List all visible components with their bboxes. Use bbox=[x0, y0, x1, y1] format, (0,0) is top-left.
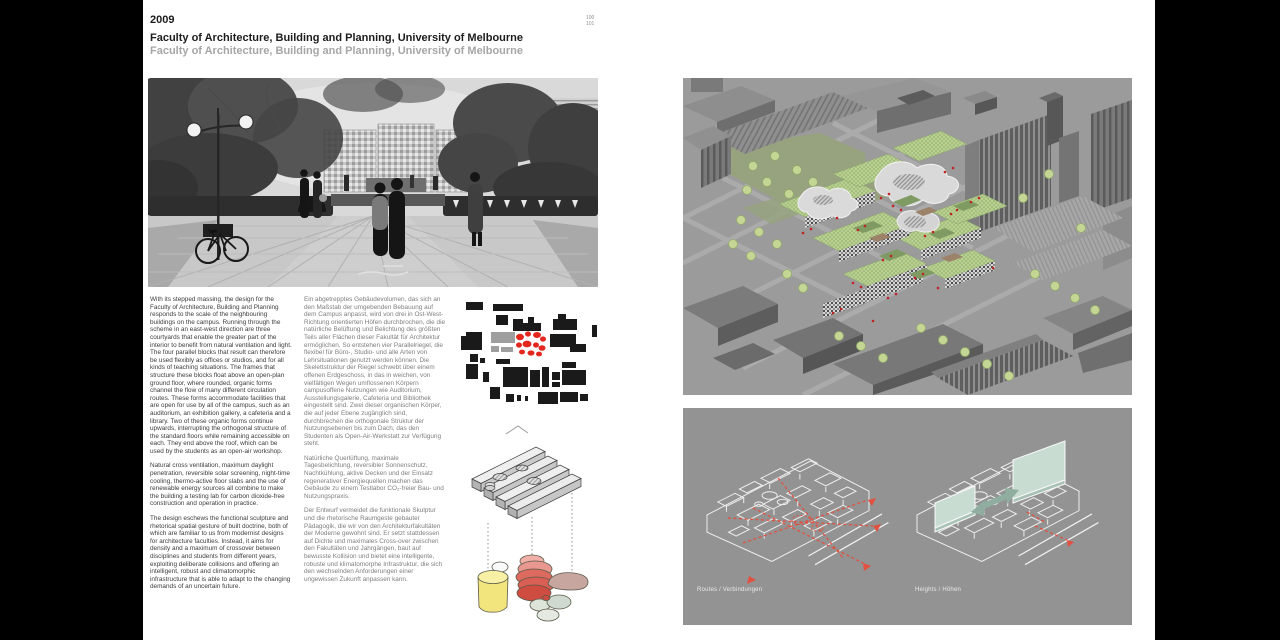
yellow-form bbox=[478, 571, 508, 613]
site-plan-site-block bbox=[491, 332, 515, 352]
campus-photo bbox=[148, 78, 598, 287]
page-number-bottom: 101 bbox=[586, 21, 594, 27]
page-numbers: 100 101 bbox=[586, 15, 594, 27]
project-header: 2009 Faculty of Architecture, Building a… bbox=[150, 14, 580, 58]
exploded-axon-graphic bbox=[460, 437, 598, 625]
axon-building-massing bbox=[472, 447, 581, 519]
campus-photo-graphic bbox=[148, 78, 598, 287]
project-title-german: Faculty of Architecture, Building and Pl… bbox=[150, 45, 580, 58]
german-text-column: Ein abgetrepptes Gebäudevolumen, das sic… bbox=[304, 296, 446, 628]
site-plan-graphic bbox=[458, 292, 602, 440]
german-paragraph-1: Ein abgetrepptes Gebäudevolumen, das sic… bbox=[304, 296, 446, 448]
english-paragraph-1: With its stepped massing, the design for… bbox=[150, 296, 292, 455]
exploded-axon-diagram bbox=[460, 437, 598, 625]
aerial-render-graphic bbox=[683, 78, 1132, 395]
concept-diagrams-render: Routes / Verbindungen Heights / Höhen bbox=[683, 408, 1132, 625]
caption-heights: Heights / Höhen bbox=[915, 587, 961, 593]
english-paragraph-3: The design eschews the functional sculpt… bbox=[150, 515, 292, 591]
red-stacked-form bbox=[516, 555, 554, 601]
site-plan-organic-forms bbox=[516, 331, 546, 356]
spread-pages: 2009 Faculty of Architecture, Building a… bbox=[143, 0, 1155, 640]
mauve-form bbox=[548, 573, 588, 590]
english-paragraph-2: Natural cross ventilation, maximum dayli… bbox=[150, 462, 292, 508]
german-paragraph-3: Der Entwurf vermeidet die funktionale Sk… bbox=[304, 507, 446, 583]
german-paragraph-2: Natürliche Querlüftung, maximale Tagesbe… bbox=[304, 455, 446, 501]
project-title-english: Faculty of Architecture, Building and Pl… bbox=[150, 32, 580, 45]
english-text-column: With its stepped massing, the design for… bbox=[150, 296, 292, 628]
aerial-axonometric-render bbox=[683, 78, 1132, 395]
project-year: 2009 bbox=[150, 14, 580, 27]
axon-organic-forms bbox=[478, 555, 588, 621]
site-plan-diagram bbox=[458, 292, 602, 440]
book-spread-scan: 2009 Faculty of Architecture, Building a… bbox=[0, 0, 1280, 640]
caption-routes: Routes / Verbindungen bbox=[697, 587, 762, 593]
bike-basket bbox=[203, 224, 233, 237]
site-plan-roof-mark bbox=[506, 426, 528, 434]
